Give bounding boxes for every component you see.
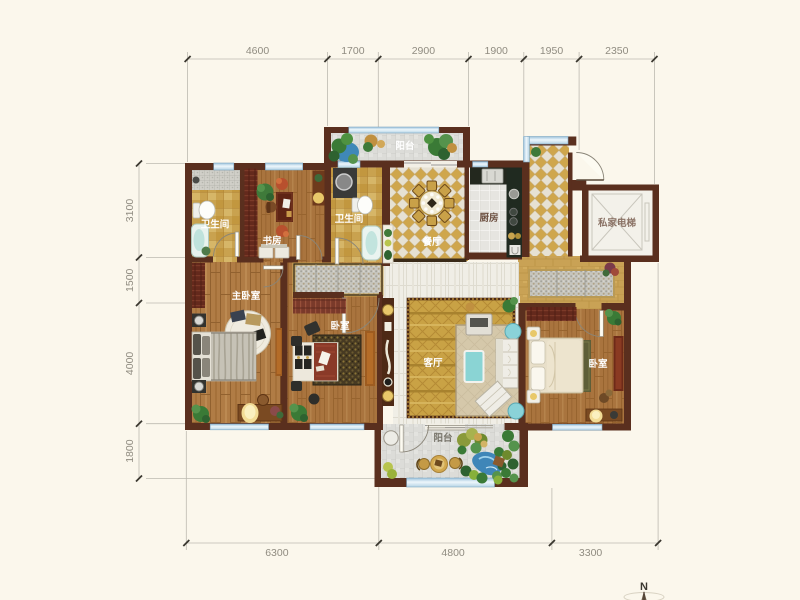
svg-text:私家电梯: 私家电梯 — [597, 217, 637, 229]
svg-text:卫生间: 卫生间 — [201, 219, 230, 231]
svg-text:卧室: 卧室 — [330, 320, 350, 332]
svg-text:2350: 2350 — [605, 45, 629, 57]
svg-text:主卧室: 主卧室 — [232, 290, 261, 302]
svg-text:卫生间: 卫生间 — [335, 213, 364, 225]
svg-text:2900: 2900 — [412, 45, 436, 57]
svg-text:1700: 1700 — [341, 45, 365, 57]
svg-text:4600: 4600 — [246, 45, 270, 57]
svg-text:餐厅: 餐厅 — [421, 236, 442, 248]
svg-text:1950: 1950 — [540, 45, 564, 57]
svg-text:阳台: 阳台 — [433, 432, 453, 444]
svg-text:4000: 4000 — [124, 352, 136, 376]
svg-text:3100: 3100 — [124, 199, 136, 223]
svg-text:阳台: 阳台 — [395, 140, 415, 152]
svg-text:4800: 4800 — [441, 547, 465, 559]
svg-text:书房: 书房 — [262, 235, 281, 247]
svg-text:客厅: 客厅 — [422, 357, 443, 369]
svg-text:3300: 3300 — [579, 547, 603, 559]
svg-text:1900: 1900 — [485, 45, 509, 57]
svg-text:厨房: 厨房 — [479, 212, 498, 224]
svg-text:卧室: 卧室 — [588, 358, 608, 370]
svg-text:6300: 6300 — [265, 547, 289, 559]
svg-text:1800: 1800 — [124, 439, 136, 463]
svg-text:1500: 1500 — [124, 268, 136, 292]
